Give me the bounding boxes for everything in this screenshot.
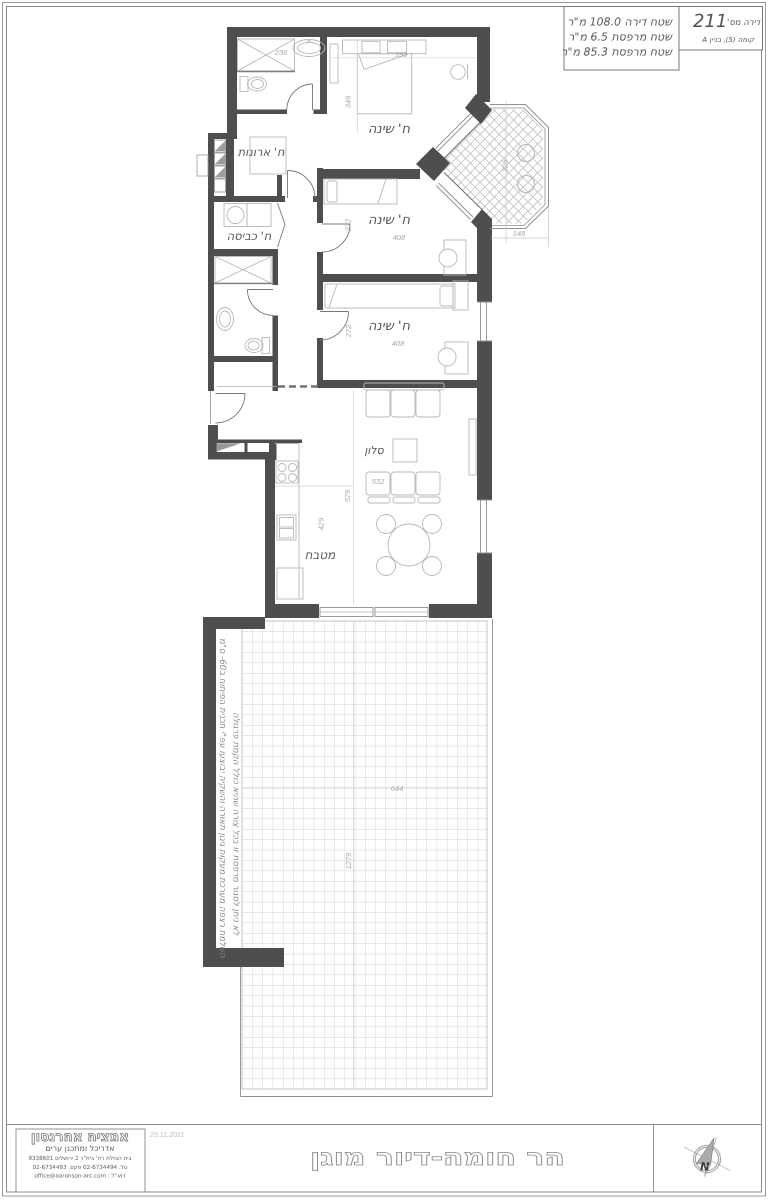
svg-text:346: 346: [344, 95, 353, 108]
svg-text:272: 272: [344, 324, 353, 338]
svg-text:1279: 1279: [344, 852, 353, 870]
svg-text:148: 148: [513, 229, 526, 238]
svg-text:532: 532: [372, 477, 385, 486]
svg-text:644: 644: [391, 784, 404, 793]
svg-text:393: 393: [395, 50, 408, 59]
svg-text:272: 272: [344, 218, 353, 232]
svg-text:408: 408: [393, 233, 406, 242]
svg-text:325: 325: [501, 159, 510, 172]
svg-text:576: 576: [343, 489, 352, 502]
svg-text:408: 408: [392, 339, 405, 348]
svg-text:25.11.2021: 25.11.2021: [149, 1132, 185, 1139]
svg-text:429: 429: [317, 517, 326, 530]
svg-text:236: 236: [274, 48, 288, 57]
